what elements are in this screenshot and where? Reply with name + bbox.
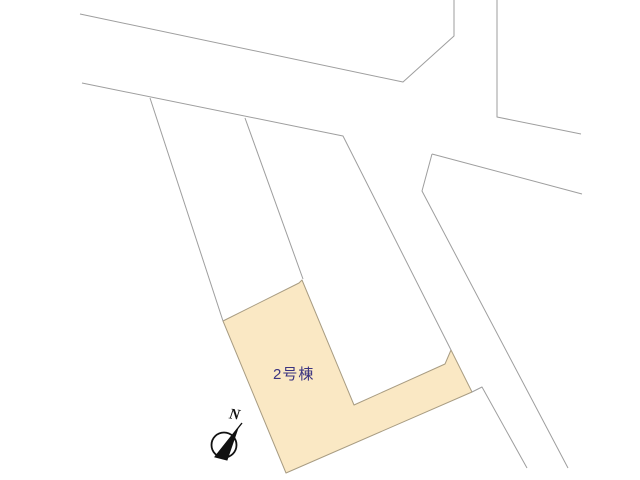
parcel-label: 2号棟 [273,363,314,384]
road-upper-right-lower-edge [432,154,582,194]
road-top-vertical-right-edge [497,0,581,134]
parcel-boundary-middle [245,118,303,279]
road-north-upper-edge [80,0,454,82]
parcel-boundary-left [150,98,223,321]
site-plan-drawing [0,0,640,480]
site-plan: 2号棟 N [0,0,640,480]
road-southeast-left-edge-lower [472,387,527,468]
highlighted-parcel [223,280,472,473]
road-southeast-right-edge [422,154,568,468]
compass-north-label: N [228,406,241,424]
